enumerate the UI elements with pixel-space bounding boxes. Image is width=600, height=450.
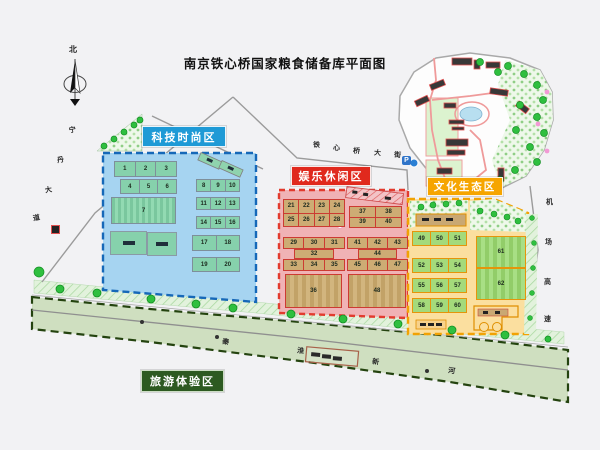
block-group: 44 — [358, 249, 397, 259]
storage-block — [147, 232, 177, 256]
block-group: 525354 — [412, 258, 467, 273]
numbered-block: 32 — [295, 250, 333, 258]
numbered-block: 24 — [330, 200, 344, 213]
numbered-block: 17 — [193, 236, 216, 250]
numbered-block: 1 — [115, 162, 135, 176]
numbered-block: 50 — [431, 232, 448, 245]
numbered-block: 19 — [193, 258, 216, 271]
numbered-block: 36 — [286, 275, 341, 307]
numbered-block: 39 — [350, 218, 375, 228]
zone-label-tech: 科技时尚区 — [142, 126, 226, 147]
numbered-block: 58 — [413, 299, 430, 312]
zone-label-tourism: 旅游体验区 — [141, 370, 224, 392]
block-group: 141516 — [196, 216, 240, 229]
river-name: 淮 — [297, 348, 305, 356]
numbered-block: 9 — [211, 180, 224, 191]
gate-marker — [51, 225, 60, 234]
block-group: 2122232425262728 — [283, 199, 345, 227]
site-plan-map: 南京铁心桥国家粮食储备库平面图 北 科技时尚区 娱乐休闲区 文化生态区 旅游体验… — [0, 0, 600, 450]
numbered-block: 49 — [413, 232, 430, 245]
numbered-block: 18 — [217, 236, 240, 250]
numbered-block: 22 — [299, 200, 313, 213]
block-group: 456 — [120, 179, 177, 194]
numbered-block: 21 — [284, 200, 298, 213]
numbered-block: 44 — [359, 250, 396, 258]
numbered-block: 52 — [413, 259, 430, 272]
numbered-block: 43 — [388, 238, 407, 248]
numbered-block: 16 — [226, 217, 239, 228]
block-group: 333435 — [283, 259, 345, 271]
numbered-block: 56 — [431, 279, 448, 292]
block-group: 454647 — [347, 259, 408, 271]
numbered-block: 8 — [197, 180, 210, 191]
numbered-block: 57 — [449, 279, 466, 292]
block-group: 585960 — [412, 298, 467, 313]
road-name-east: 高 — [544, 279, 551, 286]
river-name: 秦 — [222, 339, 230, 347]
block-group: 8910 — [196, 179, 240, 192]
numbered-block: 45 — [348, 260, 367, 270]
river-name: 河 — [448, 368, 456, 376]
block-group: 7 — [111, 197, 176, 224]
numbered-block: 28 — [330, 214, 344, 227]
compass-north-label: 北 — [69, 44, 77, 55]
numbered-block: 20 — [217, 258, 240, 271]
numbered-block: 13 — [226, 198, 239, 209]
numbered-block: 42 — [368, 238, 387, 248]
numbered-block: 26 — [299, 214, 313, 227]
road-name-west: 宁 — [68, 126, 76, 134]
info-icon — [410, 159, 418, 167]
block-group: 37383940 — [349, 206, 402, 228]
numbered-block: 33 — [284, 260, 303, 270]
numbered-block: 29 — [284, 238, 303, 248]
block-group: 293031 — [283, 237, 345, 249]
block-group: 414243 — [347, 237, 408, 249]
numbered-block: 30 — [304, 238, 323, 248]
numbered-block: 40 — [376, 218, 401, 228]
block-group: 123 — [114, 161, 177, 177]
storage-block — [110, 231, 147, 255]
block-group: 1718 — [192, 235, 240, 251]
numbered-block: 25 — [284, 214, 298, 227]
road-name-west: 丹 — [56, 156, 64, 164]
numbered-block: 34 — [304, 260, 323, 270]
road-name-east: 速 — [544, 316, 551, 323]
numbered-block: 35 — [325, 260, 344, 270]
numbered-block: 48 — [349, 275, 405, 307]
road-name-west: 大 — [44, 186, 52, 194]
block-group: 48 — [348, 274, 406, 308]
numbered-block: 54 — [449, 259, 466, 272]
numbered-block: 14 — [197, 217, 210, 228]
numbered-block: 7 — [112, 198, 175, 223]
zone-label-culture: 文化生态区 — [427, 177, 503, 196]
road-name-north: 街 — [394, 152, 402, 160]
numbered-block: 55 — [413, 279, 430, 292]
block-group: 111213 — [196, 197, 240, 210]
numbered-block: 6 — [158, 180, 176, 193]
river-name: 新 — [372, 359, 380, 367]
road-name-east: 场 — [545, 239, 552, 246]
numbered-block: 41 — [348, 238, 367, 248]
numbered-block: 61 — [477, 237, 525, 267]
numbered-block: 11 — [197, 198, 210, 209]
page-title: 南京铁心桥国家粮食储备库平面图 — [0, 53, 570, 72]
numbered-block: 53 — [431, 259, 448, 272]
road-name-west: 道 — [32, 214, 40, 222]
block-group: 62 — [476, 268, 526, 300]
numbered-block: 5 — [140, 180, 158, 193]
block-group: 36 — [285, 274, 342, 308]
block-group: 32 — [294, 249, 334, 259]
zone-label-fun: 娱乐休闲区 — [291, 166, 371, 186]
numbered-block: 47 — [388, 260, 407, 270]
block-group: 61 — [476, 236, 526, 268]
road-name-north: 铁 — [313, 142, 321, 150]
numbered-block: 31 — [325, 238, 344, 248]
block-group: 1920 — [192, 257, 240, 272]
road-name-north: 心 — [333, 145, 341, 153]
numbered-block: 46 — [368, 260, 387, 270]
block-group: 555657 — [412, 278, 467, 293]
parking-icon: P — [402, 156, 411, 165]
numbered-block: 10 — [226, 180, 239, 191]
numbered-block: 59 — [431, 299, 448, 312]
block-group: 495051 — [412, 231, 467, 246]
road-name-north: 大 — [374, 150, 382, 158]
numbered-block: 38 — [376, 207, 401, 217]
numbered-block: 27 — [315, 214, 329, 227]
road-name-east: 机 — [546, 199, 553, 206]
numbered-block: 51 — [449, 232, 466, 245]
numbered-block: 15 — [211, 217, 224, 228]
numbered-block: 62 — [477, 269, 525, 299]
numbered-block: 37 — [350, 207, 375, 217]
pond — [460, 107, 482, 121]
numbered-block: 4 — [121, 180, 139, 193]
numbered-block: 23 — [315, 200, 329, 213]
numbered-block: 12 — [211, 198, 224, 209]
numbered-block: 3 — [156, 162, 176, 176]
road-name-north: 桥 — [353, 148, 361, 156]
numbered-block: 60 — [449, 299, 466, 312]
numbered-block: 2 — [136, 162, 156, 176]
